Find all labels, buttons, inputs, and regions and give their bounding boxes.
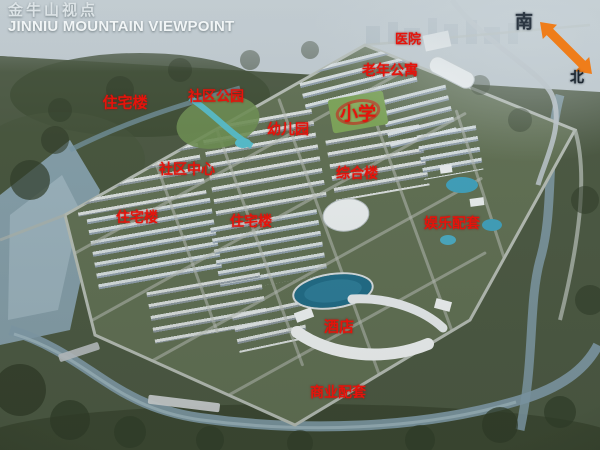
label-residential-west: 住宅楼 xyxy=(116,207,158,227)
park-pond xyxy=(235,138,251,148)
title-english: JINNIU MOUNTAIN VIEWPOINT xyxy=(8,19,234,35)
label-mixed-use-building: 综合楼 xyxy=(336,163,378,183)
label-entertainment: 娱乐配套 xyxy=(424,213,480,233)
round-roof-building xyxy=(321,196,371,234)
label-senior-apartments: 老年公寓 xyxy=(362,60,418,80)
central-lake xyxy=(291,269,375,314)
label-kindergarten: 幼儿园 xyxy=(267,119,309,139)
label-hospital: 医院 xyxy=(395,29,421,48)
title-chinese: 金牛山视点 xyxy=(8,3,234,19)
label-residential-center: 住宅楼 xyxy=(230,211,272,231)
resort-pool xyxy=(446,177,478,193)
hospital-building xyxy=(423,30,452,51)
landmarks-layer xyxy=(0,0,600,450)
label-hotel: 酒店 xyxy=(324,316,354,337)
aerial-masterplan-rendering: 金牛山视点 JINNIU MOUNTAIN VIEWPOINT 南 北 医院 老… xyxy=(0,0,600,450)
label-primary-school: 小学 xyxy=(340,100,376,126)
viewpoint-title: 金牛山视点 JINNIU MOUNTAIN VIEWPOINT xyxy=(8,3,234,35)
station-building xyxy=(427,54,477,91)
label-commercial: 商业配套 xyxy=(310,382,366,402)
compass-north-label: 北 xyxy=(570,67,584,87)
resort-pool xyxy=(482,219,502,231)
resort-pool xyxy=(440,235,456,245)
label-community-center: 社区中心 xyxy=(159,159,215,179)
bridges xyxy=(58,342,220,413)
label-community-park: 社区公园 xyxy=(188,86,244,106)
label-residential-north: 住宅楼 xyxy=(102,92,147,113)
compass-arrow-icon xyxy=(530,10,600,82)
